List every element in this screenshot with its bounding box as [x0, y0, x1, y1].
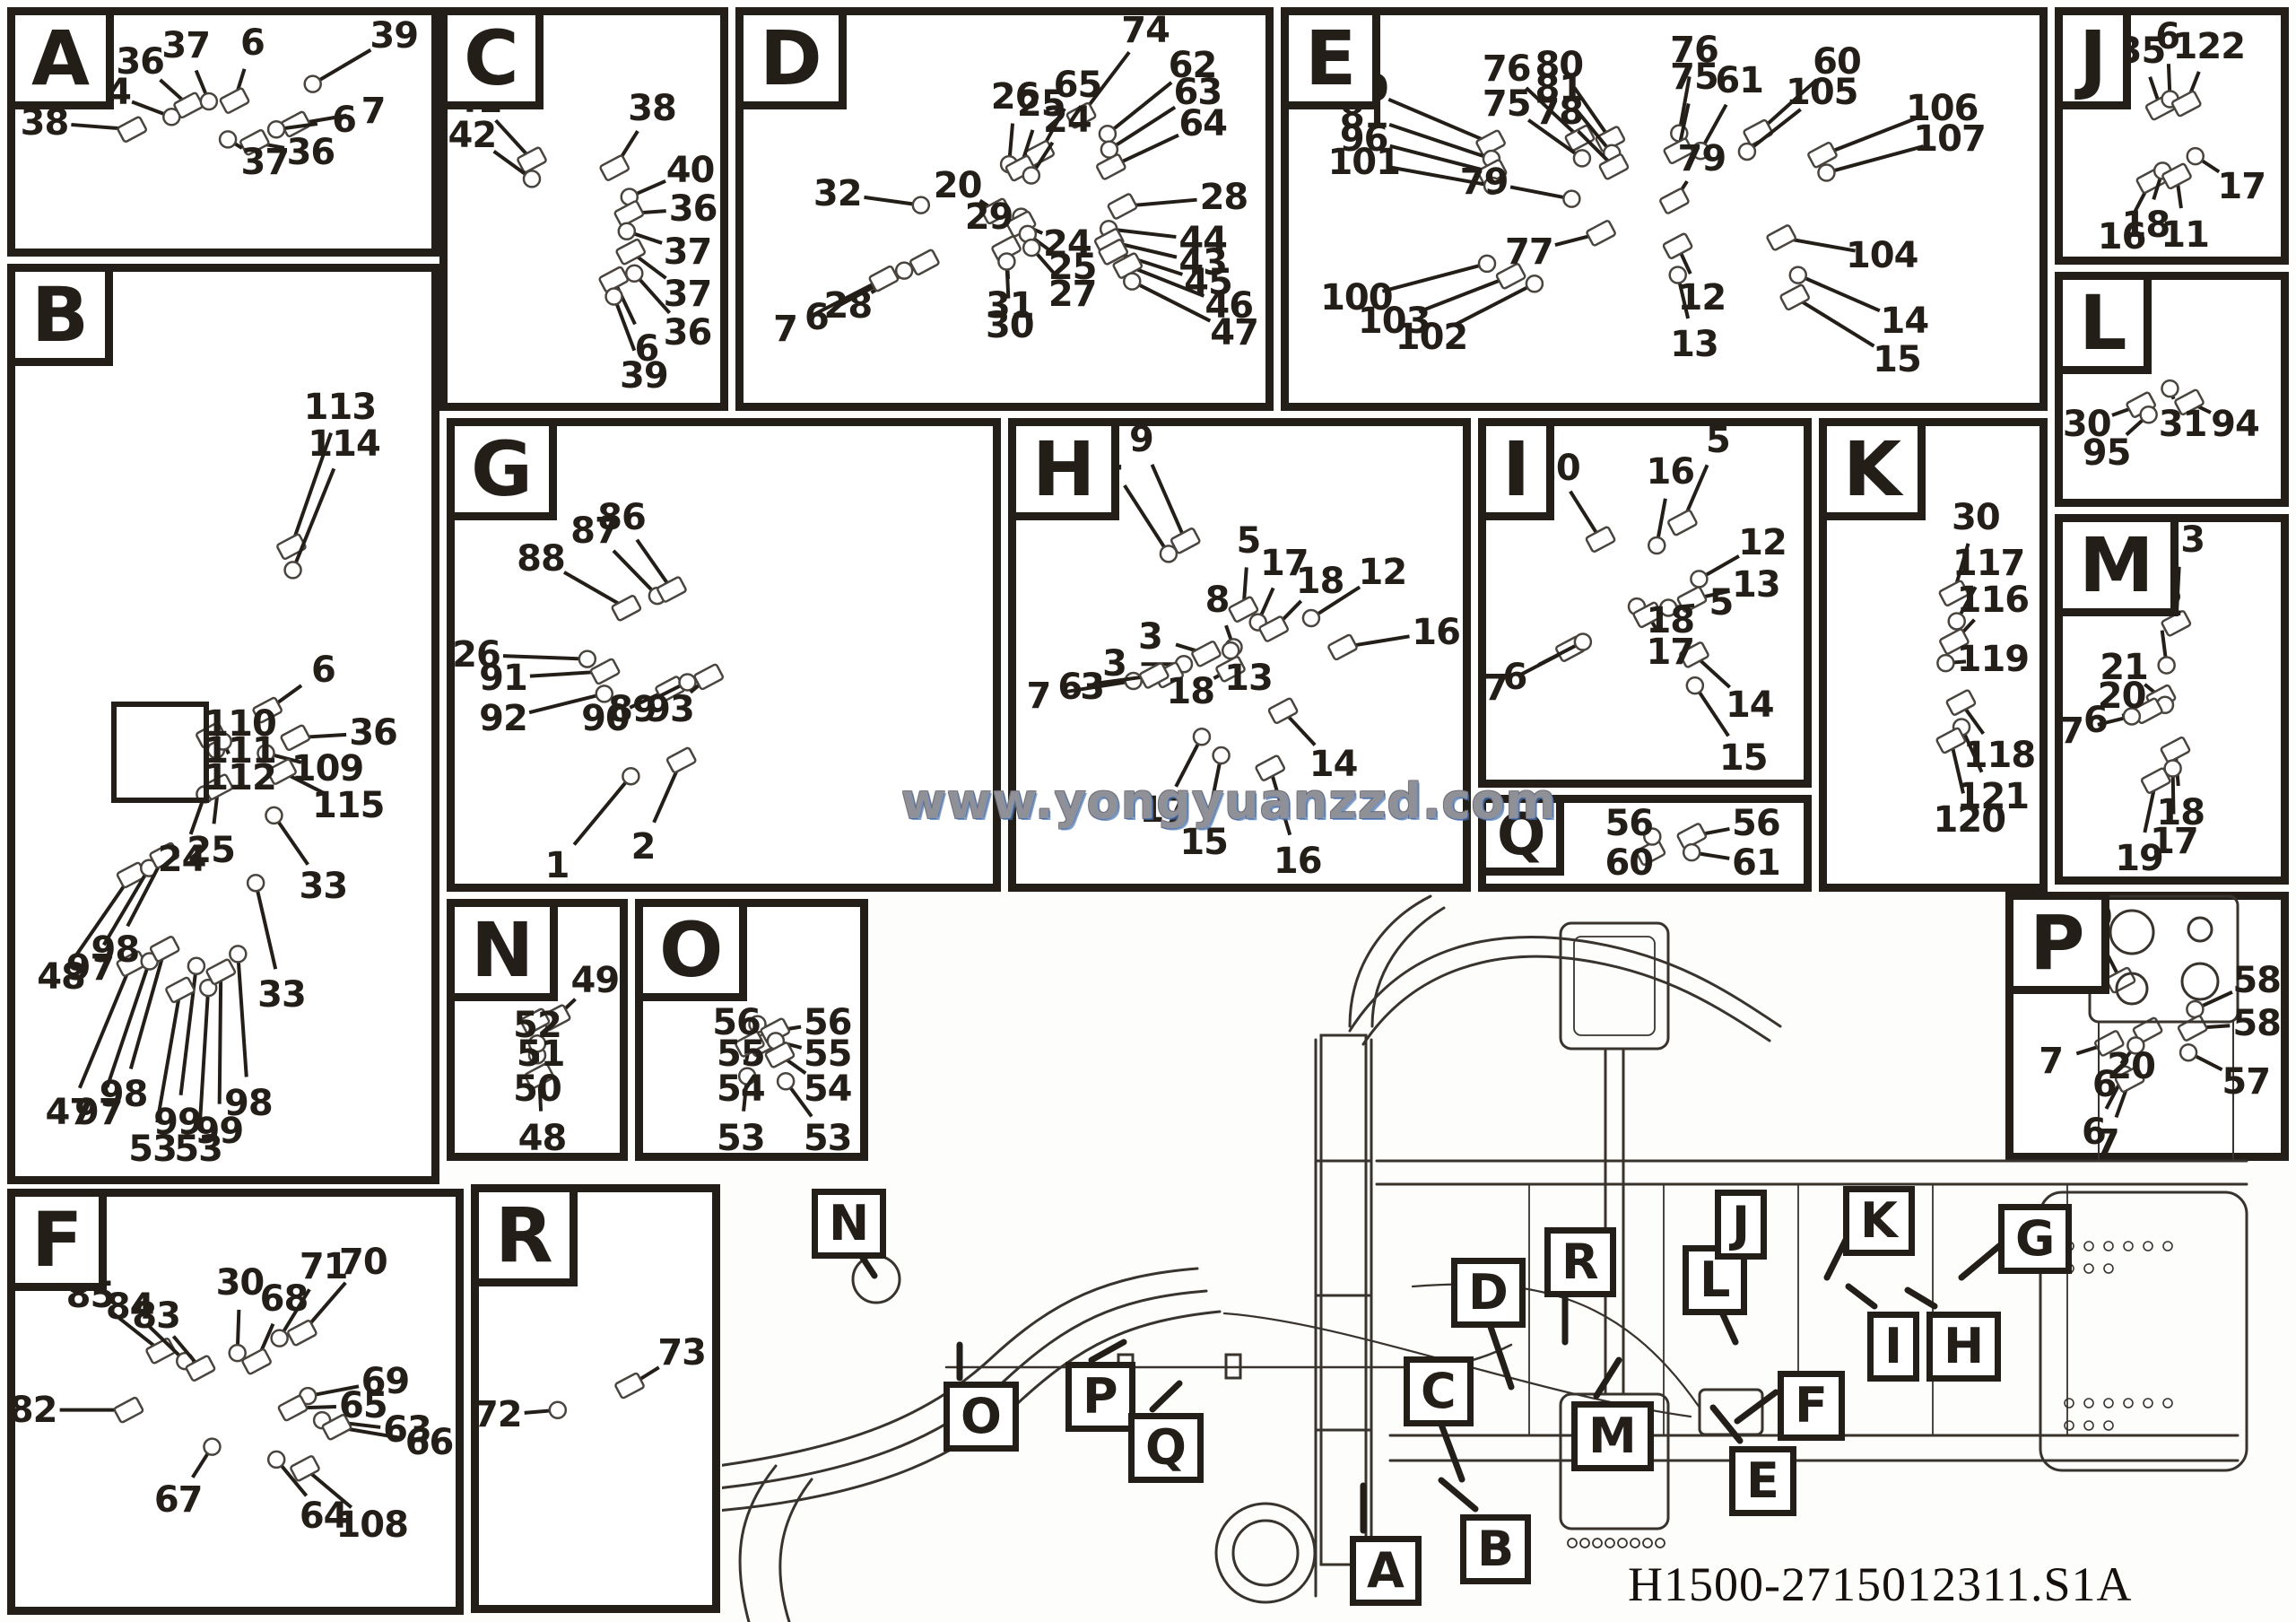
panel-letter-F: F: [7, 1189, 107, 1291]
callout-number: 6: [311, 650, 335, 691]
callout-number: 92: [479, 698, 527, 739]
callout-number: 73: [657, 1332, 706, 1373]
callout-number: 12: [1359, 552, 1407, 593]
callout-number: 48: [518, 1118, 567, 1159]
panel-letter-M: M: [2055, 514, 2179, 616]
callout-number: 18: [1166, 671, 1214, 712]
section-marker-O: O: [944, 1382, 1019, 1452]
callout-number: 83: [132, 1295, 180, 1337]
section-marker-Q: Q: [1128, 1413, 1204, 1483]
panel-A: 38343637639763637 A: [7, 7, 439, 257]
callout-number: 79: [1460, 161, 1509, 203]
callout-number: 95: [2083, 432, 2131, 474]
panel-letter-R: R: [471, 1184, 578, 1286]
callout-number: 57: [2222, 1061, 2270, 1103]
callout-number: 53: [717, 1118, 765, 1159]
callout-number: 30: [216, 1262, 265, 1304]
panel-letter-G: G: [447, 418, 557, 520]
callout-number: 7: [2039, 1041, 2063, 1082]
callout-number: 102: [1396, 317, 1468, 358]
callout-number: 17: [1646, 632, 1694, 673]
callout-number: 6: [240, 22, 265, 64]
callout-number: 53: [128, 1129, 177, 1170]
callout-number: 6: [2083, 700, 2108, 741]
callout-number: 36: [287, 132, 335, 173]
callout-number: 7: [773, 309, 797, 350]
callout-number: 113: [304, 387, 377, 428]
callout-number: 82: [9, 1390, 57, 1431]
callout-number: 56: [1732, 803, 1780, 844]
panel-letter-A: A: [7, 7, 114, 109]
parts-catalog-page: 38343637639763637 A 4142384036373736639 …: [0, 0, 2296, 1622]
detail-box: [111, 702, 209, 803]
callout-number: 6: [1057, 667, 1082, 708]
callout-number: 115: [312, 785, 385, 826]
section-marker-P: P: [1065, 1362, 1135, 1432]
panel-J: 35612217161811 J: [2055, 7, 2289, 265]
callout-number: 108: [335, 1504, 408, 1546]
callout-number: 12: [1678, 277, 1726, 318]
panel-letter-L: L: [2055, 272, 2152, 374]
callout-number: 28: [824, 285, 873, 327]
callout-number: 67: [154, 1479, 203, 1521]
callout-number: 119: [1957, 639, 2030, 680]
panel-letter-I: I: [1478, 418, 1554, 520]
callout-number: 7: [1026, 676, 1050, 717]
section-marker-K: K: [1843, 1186, 1915, 1256]
callout-number: 7: [2095, 1122, 2119, 1164]
callout-number: 98: [224, 1083, 273, 1124]
drawing-part-number: H1500-2715012311.S1A: [1628, 1557, 2133, 1612]
callout-number: 78: [1535, 92, 1583, 133]
section-marker-D: D: [1451, 1258, 1526, 1328]
callout-number: 53: [804, 1118, 852, 1159]
panel-C: 4142384036373736639 C: [439, 7, 728, 411]
panel-M: 2322212067181719 M: [2055, 514, 2289, 885]
callout-number: 66: [405, 1422, 454, 1463]
panel-D: 7462656364262524283220292444432545274647…: [735, 7, 1274, 411]
callout-number: 86: [597, 497, 646, 538]
panel-letter-P: P: [2005, 892, 2109, 994]
panel-L: 30319495 L: [2055, 272, 2289, 507]
callout-number: 107: [1913, 118, 1986, 160]
panel-letter-J: J: [2055, 7, 2131, 109]
callout-number: 11: [2161, 214, 2209, 256]
panel-letter-O: O: [635, 899, 747, 1001]
panel-N: 4952515048 N: [447, 899, 628, 1161]
callout-number: 105: [1786, 72, 1858, 113]
callout-number: 29: [965, 196, 1013, 238]
panel-letter-C: C: [439, 7, 544, 109]
callout-number: 16: [1412, 612, 1460, 653]
callout-number: 9: [1129, 419, 1153, 460]
callout-number: 112: [204, 757, 276, 798]
callout-number: 27: [1048, 274, 1097, 315]
callout-number: 42: [448, 115, 497, 156]
callout-number: 79: [1678, 138, 1726, 179]
callout-number: 1: [545, 845, 570, 886]
callout-number: 40: [666, 150, 715, 191]
callout-number: 32: [813, 173, 862, 214]
section-marker-H: H: [1926, 1312, 2001, 1382]
callout-number: 75: [1483, 83, 1531, 125]
callout-number: 18: [1296, 561, 1344, 602]
callout-number: 122: [2173, 26, 2246, 67]
section-marker-B: B: [1460, 1514, 1531, 1584]
callout-number: 50: [513, 1068, 561, 1110]
callout-number: 37: [241, 142, 290, 183]
panel-I: 10165121318175141576 I: [1478, 418, 1812, 788]
callout-number: 61: [1715, 60, 1763, 101]
section-marker-A: A: [1350, 1536, 1422, 1606]
callout-number: 31: [2159, 404, 2207, 445]
callout-number: 12: [1738, 522, 1787, 563]
exploded-view-E: 8081961017675808178767561797977100103102…: [1289, 15, 2039, 403]
section-marker-J: J: [1715, 1190, 1767, 1260]
callout-number: 36: [349, 712, 397, 754]
callout-number: 65: [339, 1385, 387, 1426]
callout-number: 54: [804, 1068, 852, 1110]
panel-K: 30117116119118121120 K: [1819, 418, 2048, 892]
callout-number: 39: [620, 355, 668, 397]
callout-number: 75: [1670, 57, 1718, 98]
callout-number: 6: [804, 297, 829, 338]
callout-number: 37: [664, 231, 712, 273]
callout-number: 109: [291, 748, 364, 789]
callout-number: 33: [257, 974, 306, 1016]
section-marker-I: I: [1867, 1312, 1919, 1382]
panel-F: 8584833068717069826765636664108 F: [7, 1189, 464, 1615]
callout-number: 74: [1121, 10, 1170, 51]
callout-number: 30: [986, 305, 1034, 346]
exploded-view-B: 1131146110111112361091152425334897983347…: [15, 272, 431, 1176]
watermark: www.yongyuanzzd.com: [901, 773, 1557, 830]
callout-number: 49: [571, 960, 620, 1001]
callout-number: 30: [1952, 497, 2000, 538]
panel-E: 8081961017675808178767561797977100103102…: [1281, 7, 2048, 411]
panel-letter-H: H: [1008, 418, 1119, 520]
callout-number: 60: [1605, 842, 1653, 884]
callout-number: 36: [669, 188, 717, 230]
callout-number: 70: [339, 1242, 387, 1283]
panel-B: 1131146110111112361091152425334897983347…: [7, 264, 439, 1184]
section-marker-R: R: [1544, 1227, 1616, 1297]
callout-number: 33: [300, 866, 348, 907]
panel-letter-B: B: [7, 264, 113, 366]
callout-number: 15: [1873, 339, 1921, 380]
callout-number: 61: [1732, 842, 1780, 884]
callout-number: 8: [1205, 580, 1230, 621]
callout-number: 25: [187, 830, 235, 871]
callout-number: 36: [116, 41, 164, 83]
callout-number: 19: [2115, 838, 2163, 879]
callout-number: 58: [2232, 1003, 2281, 1044]
callout-number: 13: [1732, 564, 1780, 606]
callout-number: 14: [1726, 685, 1774, 726]
callout-number: 17: [2217, 166, 2266, 207]
callout-number: 58: [2232, 960, 2281, 1001]
section-marker-C: C: [1404, 1356, 1474, 1426]
callout-number: 118: [1963, 735, 2036, 776]
callout-number: 72: [474, 1394, 522, 1435]
panel-letter-D: D: [735, 7, 847, 109]
callout-number: 37: [161, 25, 210, 66]
callout-number: 64: [1178, 103, 1227, 144]
callout-number: 38: [628, 88, 676, 129]
callout-number: 5: [1709, 582, 1734, 624]
callout-number: 24: [1043, 100, 1091, 141]
callout-number: 13: [1224, 658, 1273, 699]
callout-number: 98: [91, 929, 140, 971]
callout-number: 56: [1605, 803, 1653, 844]
callout-number: 39: [370, 15, 418, 57]
callout-number: 6: [2092, 1064, 2117, 1105]
callout-number: 16: [1646, 451, 1694, 493]
callout-number: 14: [1880, 301, 1928, 342]
callout-number: 28: [1200, 177, 1248, 218]
callout-number: 3: [1102, 643, 1126, 685]
callout-number: 120: [1934, 799, 2006, 841]
callout-number: 117: [1952, 543, 2025, 584]
callout-number: 7: [361, 91, 386, 132]
callout-number: 3: [1138, 616, 1162, 658]
callout-number: 3: [1080, 667, 1104, 708]
section-marker-E: E: [1729, 1446, 1796, 1516]
section-marker-M: M: [1571, 1401, 1654, 1471]
callout-number: 36: [664, 312, 712, 353]
callout-number: 104: [1846, 235, 1918, 276]
callout-number: 94: [2211, 404, 2259, 445]
callout-number: 116: [1957, 580, 2030, 621]
callout-number: 16: [1274, 841, 1322, 882]
callout-number: 54: [717, 1068, 765, 1110]
section-marker-F: F: [1778, 1371, 1845, 1441]
callout-number: 114: [308, 423, 380, 465]
callout-number: 77: [1505, 231, 1553, 273]
callout-number: 91: [479, 658, 527, 699]
callout-number: 5: [1237, 520, 1261, 562]
panel-letter-K: K: [1819, 418, 1926, 520]
callout-number: 101: [1327, 142, 1400, 183]
panel-letter-N: N: [447, 899, 558, 1001]
panel-letter-E: E: [1281, 7, 1380, 109]
callout-number: 6: [332, 100, 356, 141]
callout-number: 15: [1719, 737, 1768, 779]
section-marker-N: N: [812, 1189, 886, 1259]
callout-number: 98: [100, 1074, 148, 1115]
callout-number: 13: [1670, 324, 1718, 365]
callout-number: 47: [1210, 312, 1258, 353]
callout-number: 5: [1706, 420, 1730, 461]
callout-number: 7: [2059, 711, 2083, 752]
callout-number: 88: [517, 538, 565, 580]
panel-R: 7372 R: [471, 1184, 720, 1613]
callout-number: 2: [631, 826, 656, 868]
section-marker-G: G: [1998, 1204, 2072, 1274]
callout-number: 93: [646, 689, 694, 730]
callout-number: 37: [664, 274, 712, 315]
callout-number: 6: [1502, 657, 1526, 698]
